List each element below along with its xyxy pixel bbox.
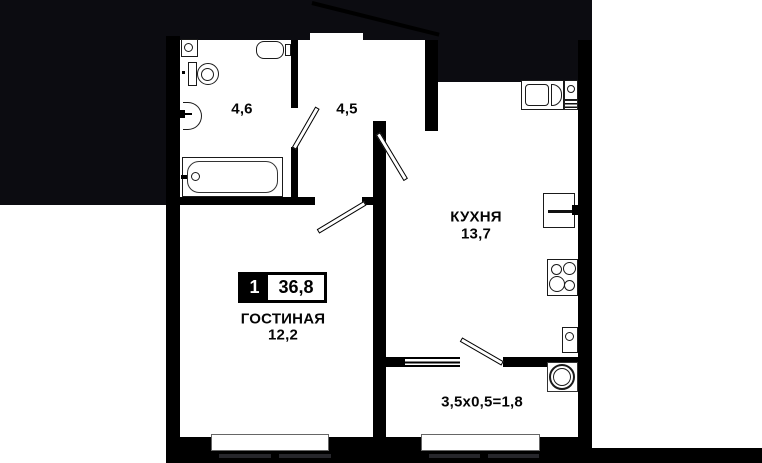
kitchen-vent-hatch <box>564 100 578 110</box>
fridge-handle-line <box>548 210 572 213</box>
basin-tap-spout <box>185 113 192 115</box>
window-sill-line <box>488 454 539 458</box>
unit-rooms-count: 1 <box>241 275 268 300</box>
bathtub-drain <box>191 172 200 181</box>
wall-right <box>578 40 592 448</box>
toilet-bowl-inner <box>201 68 214 81</box>
kitchen-name-label: КУХНЯ <box>450 209 501 226</box>
balcony-dimensions-label: 3,5x0,5=1,8 <box>441 394 523 411</box>
window-sill-line <box>429 454 480 458</box>
balcony-window <box>405 357 460 367</box>
living-room-area-label: 12,2 <box>268 327 298 344</box>
hallway-area-label: 4,5 <box>336 101 357 118</box>
living-room-name-label: ГОСТИНАЯ <box>241 311 325 328</box>
balcony-door-swing <box>460 337 504 365</box>
window-sill-line <box>219 454 271 458</box>
kitchen-sink-basin <box>525 84 549 106</box>
building-silhouette-left <box>0 0 166 205</box>
air-conditioner-fan-inner <box>553 368 571 386</box>
kitchen-area-label: 13,7 <box>461 226 491 243</box>
stove-burner <box>563 262 576 275</box>
stove-burner <box>549 276 565 292</box>
entrance-opening <box>310 33 363 40</box>
kitchen-panel-dot <box>567 85 575 93</box>
balcony-outer-window <box>421 434 540 451</box>
unit-total-area: 36,8 <box>268 275 324 300</box>
wall-kitchen-balcony-left <box>386 357 405 367</box>
wall-living-kitchen <box>373 121 386 437</box>
stove-burner <box>564 280 575 291</box>
basin-tap-icon <box>177 110 185 118</box>
bathroom-door-swing <box>292 107 320 150</box>
floor-plan: 4,6 4,5 КУХНЯ 13,7 ГОСТИНАЯ 12,2 3,5x0,5… <box>0 0 762 463</box>
unit-badge: 1 36,8 <box>238 272 327 303</box>
fridge-handle-block <box>572 205 578 215</box>
washing-machine-door-icon <box>184 43 193 52</box>
bathroom-area-label: 4,6 <box>231 101 252 118</box>
wall-bathroom-right-upper <box>291 40 298 108</box>
living-room-window <box>211 434 329 451</box>
wall-left <box>166 36 180 448</box>
living-room-door-swing <box>317 201 367 234</box>
bathtub-tap-icon <box>181 175 187 179</box>
water-heater-mount <box>285 44 291 56</box>
water-heater-fixture <box>256 41 284 59</box>
building-silhouette-top-right <box>425 0 592 82</box>
wash-basin-fixture <box>183 102 202 130</box>
stove-burner <box>551 264 562 275</box>
window-sill-line <box>279 454 331 458</box>
bathtub-inner <box>187 161 278 193</box>
toilet-valve-dot <box>182 71 185 74</box>
wall-hall-bottom-left <box>166 197 315 205</box>
wall-hall-kitchen <box>425 40 438 131</box>
toilet-tank <box>188 62 197 86</box>
boiler-dial <box>565 332 574 341</box>
